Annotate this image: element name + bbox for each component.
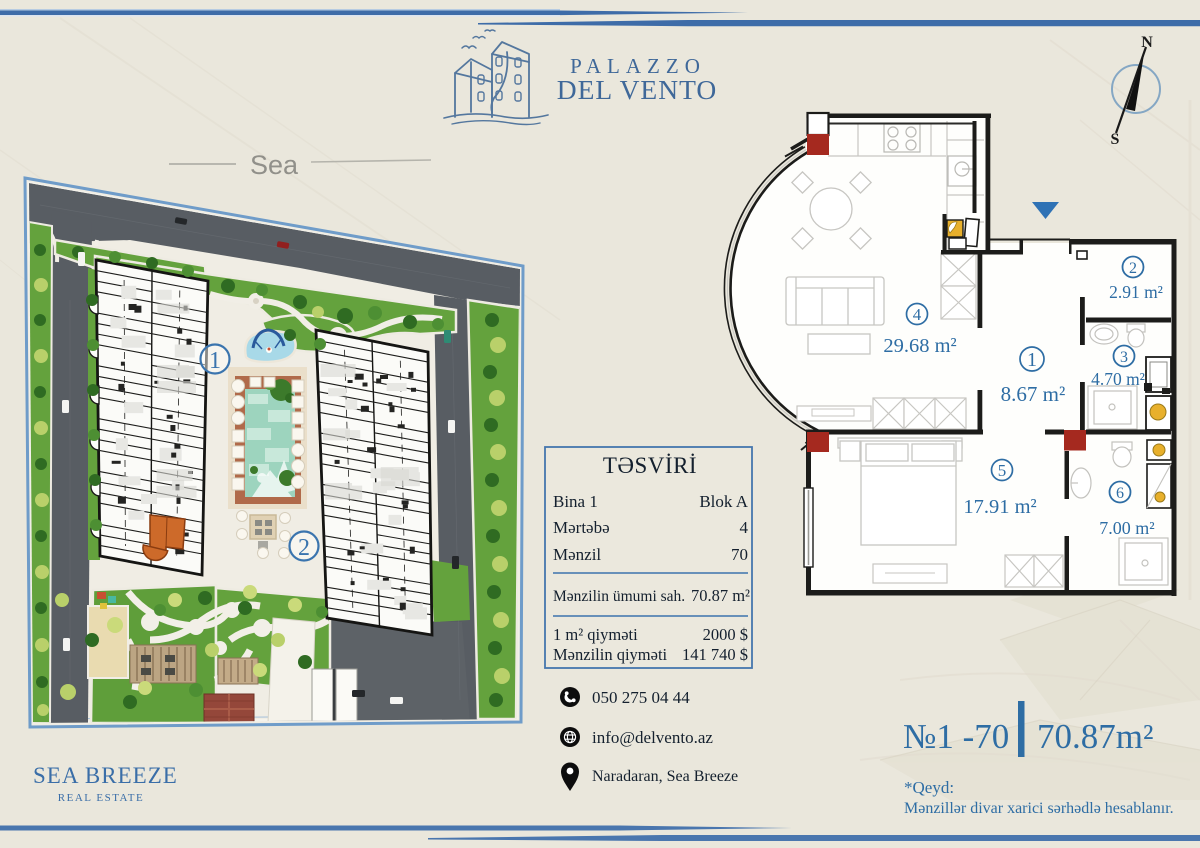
svg-text:2: 2 (1129, 260, 1137, 277)
svg-text:1: 1 (1027, 349, 1037, 371)
svg-text:141 740 $: 141 740 $ (682, 645, 748, 664)
svg-text:70: 70 (731, 545, 748, 564)
svg-text:2.91 m²: 2.91 m² (1109, 282, 1163, 302)
svg-text:Mənzil: Mənzil (553, 545, 601, 564)
svg-text:DEL VENTO: DEL VENTO (557, 74, 718, 105)
svg-text:REAL ESTATE: REAL ESTATE (58, 792, 144, 804)
svg-text:N: N (1141, 34, 1153, 51)
svg-text:Mərtəbə: Mərtəbə (553, 518, 610, 537)
svg-text:17.91 m²: 17.91 m² (963, 496, 1036, 518)
svg-text:6: 6 (1116, 485, 1124, 502)
svg-text:Mənzillər divar xarici sərhədl: Mənzillər divar xarici sərhədlə hesablan… (904, 800, 1174, 817)
svg-text:Mənzilin qiyməti: Mənzilin qiyməti (553, 645, 668, 664)
svg-text:SEA BREEZE: SEA BREEZE (33, 763, 178, 788)
svg-text:Bina 1: Bina 1 (553, 492, 598, 511)
svg-text:050 275 04 44: 050 275 04 44 (592, 688, 690, 707)
svg-text:Sea: Sea (250, 150, 299, 180)
svg-text:2: 2 (298, 535, 310, 561)
svg-text:1: 1 (209, 348, 221, 374)
svg-text:*Qeyd:: *Qeyd: (904, 778, 954, 797)
svg-text:3: 3 (1120, 349, 1128, 366)
svg-text:4: 4 (913, 305, 922, 324)
svg-text:7.00 m²: 7.00 m² (1099, 518, 1154, 538)
svg-text:Blok A: Blok A (699, 492, 748, 511)
svg-text:4.70 m²: 4.70 m² (1091, 369, 1145, 389)
svg-text:2000 $: 2000 $ (703, 625, 748, 644)
svg-text:info@delvento.az: info@delvento.az (592, 728, 713, 747)
svg-text:70.87 m²: 70.87 m² (691, 586, 750, 605)
svg-text:29.68 m²: 29.68 m² (883, 335, 956, 357)
svg-text:70.87m²: 70.87m² (1037, 717, 1153, 756)
svg-text:4: 4 (740, 518, 749, 537)
svg-text:TƏSVİRİ: TƏSVİRİ (603, 453, 697, 478)
svg-text:Mənzilin ümumi sah.: Mənzilin ümumi sah. (553, 588, 685, 605)
svg-text:Naradaran, Sea Breeze: Naradaran, Sea Breeze (592, 768, 738, 785)
svg-text:1 m² qiyməti: 1 m² qiyməti (553, 625, 638, 644)
svg-text:5: 5 (998, 461, 1007, 480)
svg-text:№1 -70: №1 -70 (903, 717, 1009, 756)
svg-text:S: S (1111, 131, 1120, 148)
svg-text:8.67 m²: 8.67 m² (1001, 382, 1066, 406)
